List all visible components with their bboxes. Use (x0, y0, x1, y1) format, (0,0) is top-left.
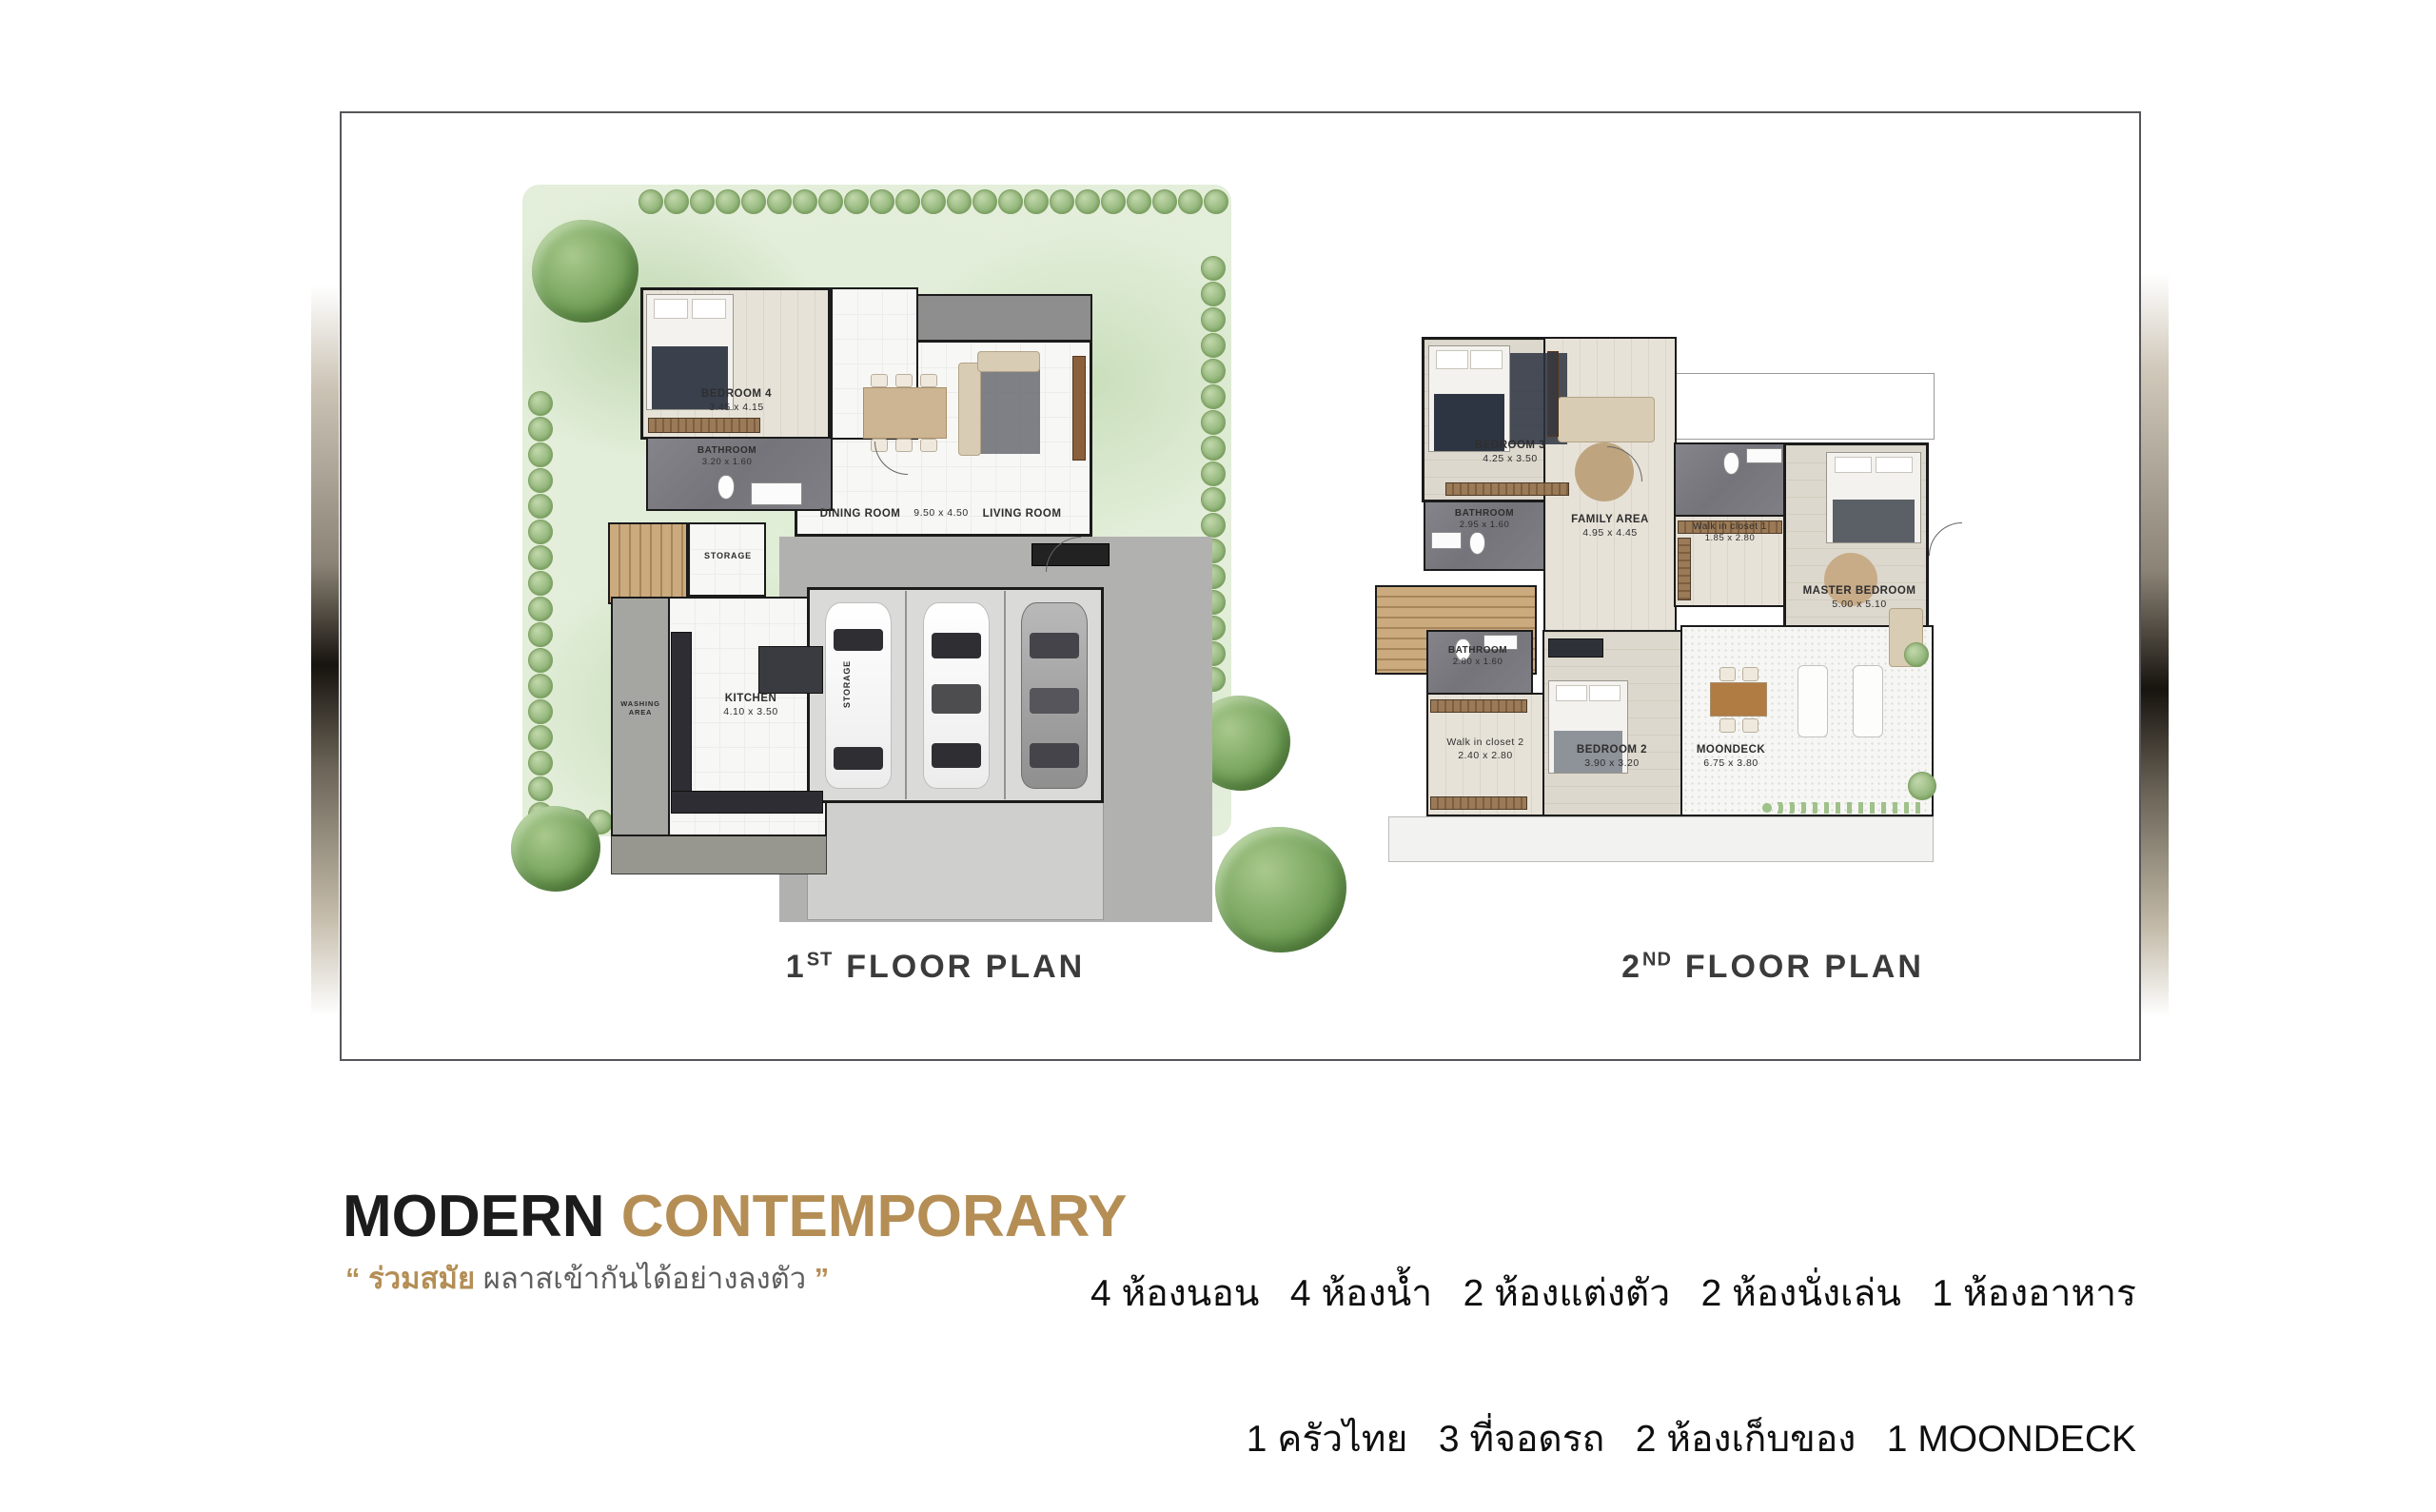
hedge-tree-icon (528, 468, 553, 493)
hedge-tree-icon (1152, 189, 1177, 214)
hedge-tree-icon (716, 189, 740, 214)
stall-divider (905, 591, 907, 799)
lounger (1798, 665, 1828, 737)
hedge-tree-icon (1178, 189, 1203, 214)
hedge-tree-icon (690, 189, 715, 214)
wardrobe (648, 418, 760, 433)
hedge-tree-icon (638, 189, 663, 214)
room-label-bedroom4: BEDROOM 4 3.45 x 4.15 (670, 387, 803, 415)
hedge-tree-icon (528, 545, 553, 570)
room-label-wic2: Walk in closet 2 2.40 x 2.80 (1424, 736, 1546, 762)
hedge-tree-icon (741, 189, 766, 214)
room-label-storage: STORAGE (690, 551, 766, 560)
room-label-bathroom-low: BATHROOM 2.80 x 1.60 (1424, 644, 1531, 668)
tv-panel (1547, 351, 1559, 437)
hedge-tree-icon (1127, 189, 1151, 214)
left-gradient-bar (311, 285, 339, 1016)
room-label-storage2: STORAGE (842, 652, 852, 717)
hedge-tree-icon (528, 442, 553, 467)
tv-panel (1072, 356, 1086, 461)
hedge-tree-icon (1075, 189, 1100, 214)
room-label-bedroom3: BEDROOM 3 4.25 x 3.50 (1444, 439, 1577, 466)
hedge-tree-icon (1201, 436, 1226, 461)
close-quote: ” (815, 1262, 830, 1295)
hedge-tree-icon (1201, 487, 1226, 512)
open-quote: “ (345, 1262, 361, 1295)
room-label-living: LIVING ROOM (970, 507, 1074, 521)
sofa (977, 351, 1040, 372)
chair (871, 374, 888, 387)
hedge-tree-icon (1204, 189, 1228, 214)
hedge-tree-icon (528, 776, 553, 801)
hedge-tree-icon (870, 189, 894, 214)
chair (895, 374, 913, 387)
chair (1742, 718, 1758, 733)
toilet (1723, 452, 1739, 475)
bed (1826, 452, 1921, 543)
toilet (717, 475, 735, 500)
hedge-tree-icon (1201, 256, 1226, 281)
hedge-tree-icon (1201, 282, 1226, 306)
quote-text: ผลาสเข้ากันได้อย่างลงตัว (483, 1262, 806, 1295)
hedge-tree-icon (1201, 513, 1226, 538)
plant-icon (1904, 642, 1929, 667)
hedge-tree-icon (528, 699, 553, 724)
hedge-tree-icon (895, 189, 920, 214)
tagline-quote: “ ร่วมสมัย ผลาสเข้ากันได้อย่างลงตัว ” (345, 1254, 829, 1302)
chair (920, 374, 937, 387)
hedge-tree-icon (528, 597, 553, 621)
hedge-tree-icon (528, 725, 553, 750)
plant-icon (1908, 772, 1936, 800)
right-gradient-bar (2141, 273, 2169, 1016)
room-label-moondeck: MOONDECK 6.75 x 3.80 (1674, 743, 1788, 771)
room-label-kitchen: KITCHEN 4.10 x 3.50 (684, 692, 817, 719)
hedge-tree-icon (528, 622, 553, 647)
quote-accent: ร่วมสมัย (368, 1262, 475, 1295)
room-label-bathroom1: BATHROOM 3.20 x 1.60 (665, 444, 789, 468)
hedge-tree-icon (1201, 359, 1226, 383)
kitchen-counter (671, 791, 823, 814)
room-label-master: MASTER BEDROOM 5.00 x 5.10 (1788, 584, 1931, 612)
tree-icon (1215, 827, 1346, 952)
room-summary: 4 ห้องนอน 4 ห้องน้ำ 2 ห้องแต่งตัว 2 ห้อง… (1042, 1172, 2136, 1512)
tree-icon (532, 220, 638, 323)
wardrobe (1678, 538, 1691, 600)
kitchen-island (758, 646, 823, 694)
room-label-bathroom-top: BATHROOM 2.95 x 1.60 (1424, 507, 1544, 531)
back-porch (611, 835, 827, 874)
hedge-tree-icon (818, 189, 843, 214)
wardrobe (1430, 796, 1527, 810)
summary-line-1: 4 ห้องนอน 4 ห้องน้ำ 2 ห้องแต่งตัว 2 ห้อง… (1042, 1269, 2136, 1318)
hedge-tree-icon (528, 674, 553, 698)
hedge-tree-icon (1101, 189, 1126, 214)
hedge-tree-icon (998, 189, 1023, 214)
summary-line-2: 1 ครัวไทย 3 ที่จอดรถ 2 ห้องเก็บของ 1 MOO… (1042, 1415, 2136, 1463)
sofa (958, 363, 981, 456)
dining-table (863, 387, 947, 439)
stall-divider (1004, 591, 1006, 799)
room-label-wic1: Walk in closet 1 1.85 x 2.80 (1672, 520, 1788, 544)
wardrobe (1430, 699, 1527, 713)
hedge-tree-icon (1050, 189, 1074, 214)
bed (1428, 345, 1510, 452)
hedge-tree-icon (528, 571, 553, 596)
shrub-row (1761, 802, 1921, 814)
vanity (1431, 532, 1462, 549)
wardrobe (1445, 482, 1569, 496)
hedge-tree-icon (1201, 307, 1226, 332)
hedge-tree-icon (528, 751, 553, 776)
door-arc (1929, 522, 1962, 556)
plan-card: BEDROOM 4 3.45 x 4.15 BATHROOM 3.20 x 1.… (340, 111, 2141, 1061)
hedge-tree-icon (972, 189, 997, 214)
car-sedan (923, 602, 990, 789)
floorplan-sheet: { "colors":{"accent_gold":"#b48e55","wal… (0, 0, 2436, 1339)
vanity (1746, 448, 1782, 463)
terrace-band (1388, 816, 1934, 862)
hedge-tree-icon (528, 648, 553, 673)
desk (1548, 638, 1603, 658)
room-label-washing: WASHING AREA (614, 699, 667, 717)
driveway-apron (807, 801, 1104, 920)
hedge-tree-icon (1201, 384, 1226, 409)
floor1-caption: 1STFLOOR PLAN (745, 949, 1126, 986)
toilet (1469, 532, 1485, 555)
sofa (1558, 397, 1655, 442)
chair (1742, 667, 1758, 681)
hedge-tree-icon (1201, 461, 1226, 486)
hedge-tree-icon (528, 391, 553, 416)
hedge-tree-icon (528, 494, 553, 519)
hedge-tree-icon (1201, 410, 1226, 435)
hedge-tree-icon (793, 189, 817, 214)
outdoor-table (1710, 682, 1767, 717)
room-label-bedroom2: BEDROOM 2 3.90 x 3.20 (1545, 743, 1679, 771)
hedge-tree-icon (528, 417, 553, 442)
hedge-tree-icon (1024, 189, 1049, 214)
chair (920, 439, 937, 452)
hedge-tree-icon (921, 189, 946, 214)
vanity (751, 482, 802, 505)
stairs-floor1 (608, 522, 688, 604)
car-gray (1021, 602, 1088, 789)
car-suv (825, 602, 892, 789)
page-title: MODERN CONTEMPORARY (343, 1183, 1127, 1250)
chair (1719, 718, 1736, 733)
hedge-tree-icon (1201, 333, 1226, 358)
hedge-tree-icon (528, 520, 553, 544)
chair (1719, 667, 1736, 681)
lounger (1853, 665, 1883, 737)
room-label-dining: DINING ROOM (808, 507, 913, 521)
hedge-tree-icon (664, 189, 689, 214)
washing-area-room (611, 597, 670, 836)
hedge-tree-icon (767, 189, 792, 214)
hedge-tree-icon (947, 189, 972, 214)
tree-icon (511, 806, 600, 892)
floor2-caption: 2NDFLOOR PLAN (1582, 949, 1963, 986)
room-label-family: FAMILY AREA 4.95 x 4.45 (1553, 513, 1667, 540)
hedge-tree-icon (844, 189, 869, 214)
title-primary: MODERN (343, 1184, 605, 1249)
